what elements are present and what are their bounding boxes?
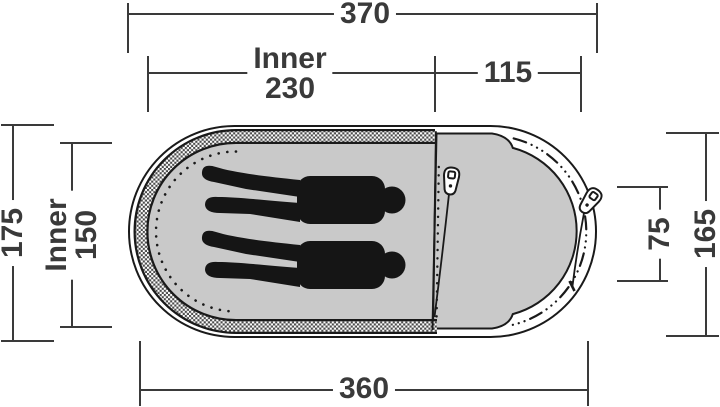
dim-top-porch-label: 115 xyxy=(478,58,538,88)
dim-left-inner-word: Inner xyxy=(42,198,72,271)
dim-top-total-label: 370 xyxy=(334,0,396,29)
dim-left-total-label: 175 xyxy=(0,200,30,266)
tent-floorplan-diagram: 370 Inner 230 115 175 Inner 150 75 165 3… xyxy=(0,0,720,407)
dim-top-inner-label: Inner 230 xyxy=(247,44,332,104)
dim-left-inner-label: Inner 150 xyxy=(40,190,104,279)
dim-left-inner-value: 150 xyxy=(72,198,102,271)
dim-top-inner-value: 230 xyxy=(253,74,326,104)
tent-floorplan-drawing xyxy=(0,0,720,407)
dim-bottom-total-label: 360 xyxy=(333,374,395,404)
dim-right-total-label: 165 xyxy=(689,201,720,267)
dim-right-door-label: 75 xyxy=(643,209,677,258)
dim-top-inner-word: Inner xyxy=(253,44,326,74)
